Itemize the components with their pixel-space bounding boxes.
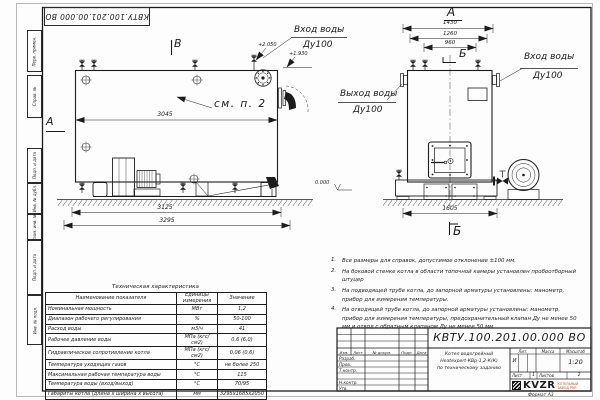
drawing-title-line1: Котел водогрейный [429, 351, 509, 358]
elevation-zero: 0.000 [315, 180, 329, 186]
outlet-label: Выход воды [340, 89, 397, 99]
spec-name: Номинальная мощность [46, 305, 177, 315]
table-row: Рабочее давление водыМПа (кгс/см2)0,6 (6… [46, 334, 267, 347]
spec-units: °С [177, 360, 218, 370]
col-podp: Подп. [399, 350, 415, 355]
frame-label: Подп. и дата [32, 152, 37, 179]
spec-name: Расход воды [46, 324, 177, 334]
spec-units: °С [177, 379, 218, 389]
see-note-callout: см. п. 2 [214, 98, 267, 110]
liter-header: Лит. [510, 349, 536, 354]
role-razrab: Разраб. [339, 356, 355, 361]
note-number: 4. [331, 306, 342, 332]
spec-value: 50-100 [218, 314, 267, 324]
spec-value: 3295х1685х2050 [218, 389, 267, 399]
scale-value: 1:20 [560, 358, 591, 366]
table-row: Температура уходящих газов°Сне более 250 [46, 360, 267, 370]
drawing-sheet: Перв. примен. Справ. № Подп. и дата Инв.… [0, 0, 600, 400]
spec-name: Диапазон рабочего регулирования [46, 314, 177, 324]
note-text: На боковой стенке котла в области топочн… [342, 268, 581, 285]
frame-cell-sprav-no: Справ. № [27, 75, 42, 118]
note-number: 1. [331, 257, 342, 266]
role-nkontr: Н.контр. [339, 380, 358, 385]
frame-label: Перв. примен. [32, 36, 37, 66]
note-2: 2. На боковой стенке котла в области топ… [331, 268, 581, 285]
sheets-value: 2 [567, 373, 591, 378]
frame-cell-vzam-inv: Взам. инв. № [27, 214, 42, 240]
spec-value: 1,2 [218, 305, 267, 315]
spec-header-value: Значение [218, 293, 267, 305]
flipped-doc-number-stamp: КВТУ.100.201.00.000 ВО [44, 7, 150, 26]
dim-1605: 1605 [428, 205, 472, 212]
spec-units: МВт [177, 305, 218, 315]
frame-cell-inv-podl: Инв. № подл. [27, 295, 42, 345]
note-number: 3. [331, 287, 342, 304]
spec-header-row: Наименование показателя Единицы измерени… [46, 293, 267, 305]
kvzr-logo-text: KVZR [523, 380, 555, 391]
role-tkontr: Т.контр. [339, 368, 357, 373]
spec-units: м3/ч [177, 324, 218, 334]
spec-name: Температура уходящих газов [46, 360, 177, 370]
frame-label: Подп. и дата [32, 254, 37, 281]
role-prov: Пров. [339, 362, 351, 367]
col-izm: Изм. [337, 350, 351, 355]
spec-units: мм [177, 389, 218, 399]
view-marker-a: А [447, 5, 455, 19]
spec-header-units: Единицы измерения [177, 293, 218, 305]
inlet-size-front: Ду100 [533, 71, 563, 81]
table-row: Расход водым3/ч41 [46, 324, 267, 334]
table-row: Температура воды (вход/выход)°С70/95 [46, 379, 267, 389]
view-marker-v: В [174, 37, 182, 50]
spec-name: Рабочее давление воды [46, 334, 177, 347]
drawing-title: Котел водогрейный Heatexpert-КВр-1,2-К(К… [429, 351, 509, 372]
frame-label: Инв. № дубл. [32, 185, 37, 212]
note-text: На отводящей трубе котла, до запорной ар… [342, 306, 581, 332]
frame-label: Инв. № подл. [32, 306, 37, 334]
section-marker-a: А [46, 115, 54, 128]
dim-960: 960 [432, 40, 468, 46]
dim-1430: 1430 [430, 20, 470, 26]
spec-units: °С [177, 370, 218, 380]
note-4: 4. На отводящей трубе котла, до запорной… [331, 306, 581, 332]
table-row: Габариты котла (длина х ширина х высота)… [46, 389, 267, 399]
spec-value: 0,06 (0,6) [218, 347, 267, 360]
spec-header-name: Наименование показателя [46, 293, 177, 305]
spec-name: Температура воды (вход/выход) [46, 379, 177, 389]
role-utv: Утв. [339, 386, 348, 391]
inlet-label-front: Вход воды [524, 52, 574, 62]
elevation-2050: +2.050 [258, 42, 277, 48]
kvzr-logo-icon [512, 381, 521, 390]
frame-cell-perv-primen: Перв. примен. [27, 30, 42, 72]
frame-cell-podp-data-2: Подп. и дата [27, 240, 42, 295]
note-text: Все размеры для справок, допустимое откл… [342, 257, 581, 266]
drawing-title-line3: по техническому заданию [429, 365, 509, 372]
frame-label: Взам. инв. № [32, 213, 37, 240]
elevation-1930: +1.930 [289, 51, 308, 57]
frame-label: Справ. № [32, 87, 37, 106]
mass-header: Масса [536, 349, 560, 354]
sheets-label: Листов [539, 373, 554, 378]
note-1: 1. Все размеры для справок, допустимое о… [331, 257, 581, 266]
dim-3125: 3125 [140, 204, 190, 211]
flipped-doc-number-text: КВТУ.100.201.00.000 ВО [45, 12, 149, 21]
table-row: Диапазон рабочего регулирования%50-100 [46, 314, 267, 324]
format-label: Формат А3 [528, 393, 554, 398]
ground-hatch [57, 200, 563, 207]
note-number: 2. [331, 268, 342, 285]
dim-3045: 3045 [140, 111, 190, 118]
doc-number: КВТУ.100.201.00.000 ВО [430, 331, 589, 344]
kvzr-sub-line2: ЗАВОД РЭП [557, 386, 578, 390]
drawing-title-line2: Heatexpert-КВр-1,2-К(К) [429, 358, 509, 365]
col-list: Лист [351, 350, 365, 355]
sheet-label: Лист [512, 373, 522, 378]
table-row: Гидравлическое сопротивление котлаМПа (к… [46, 347, 267, 360]
spec-value: 41 [218, 324, 267, 334]
dim-1260: 1260 [430, 31, 470, 37]
spec-name: Гидравлическое сопротивление котла [46, 347, 177, 360]
frame-cell-podp-data-1: Подп. и дата [27, 148, 42, 183]
outlet-size: Ду100 [353, 105, 383, 115]
spec-units: МПа (кгс/см2) [177, 334, 218, 347]
notes-block: 1. Все размеры для справок, допустимое о… [331, 257, 581, 334]
axis-marker-b-top: Б [459, 47, 467, 60]
spec-name: Максимальная рабочая температура воды [46, 370, 177, 380]
spec-value: 70/95 [218, 379, 267, 389]
frame-cell-inv-dubl: Инв. № дубл. [27, 183, 42, 214]
manufacturer-logo: KVZR КОТЕЛЬНЫЙ ЗАВОД РЭП [512, 380, 578, 391]
section-marker-b-bottom: Б [453, 224, 461, 238]
dim-3295: 3295 [142, 217, 192, 224]
spec-value: 115 [218, 370, 267, 380]
inlet-size-side: Ду100 [303, 40, 333, 50]
liter-value: И [510, 358, 519, 364]
note-text: На подводящей трубе котла, до запорной а… [342, 287, 581, 304]
kvzr-logo-subtitle: КОТЕЛЬНЫЙ ЗАВОД РЭП [557, 382, 578, 390]
spec-name: Габариты котла (длина х ширина х высота) [46, 389, 177, 399]
spec-table: Наименование показателя Единицы измерени… [45, 292, 267, 400]
sheet-value: 1 [530, 373, 537, 378]
spec-table-title: Техническая характеристика [45, 284, 266, 290]
table-row: Номинальная мощностьМВт1,2 [46, 305, 267, 315]
table-row: Максимальная рабочая температура воды°С1… [46, 370, 267, 380]
inlet-label-side: Вход воды [294, 25, 344, 35]
spec-units: % [177, 314, 218, 324]
col-data: Дата [415, 350, 428, 355]
col-dokum: № докум. [365, 350, 399, 355]
spec-value: не более 250 [218, 360, 267, 370]
scale-header: Масштаб [560, 349, 591, 354]
spec-units: МПа (кгс/см2) [177, 347, 218, 360]
note-3: 3. На подводящей трубе котла, до запорно… [331, 287, 581, 304]
spec-value: 0,6 (6,0) [218, 334, 267, 347]
